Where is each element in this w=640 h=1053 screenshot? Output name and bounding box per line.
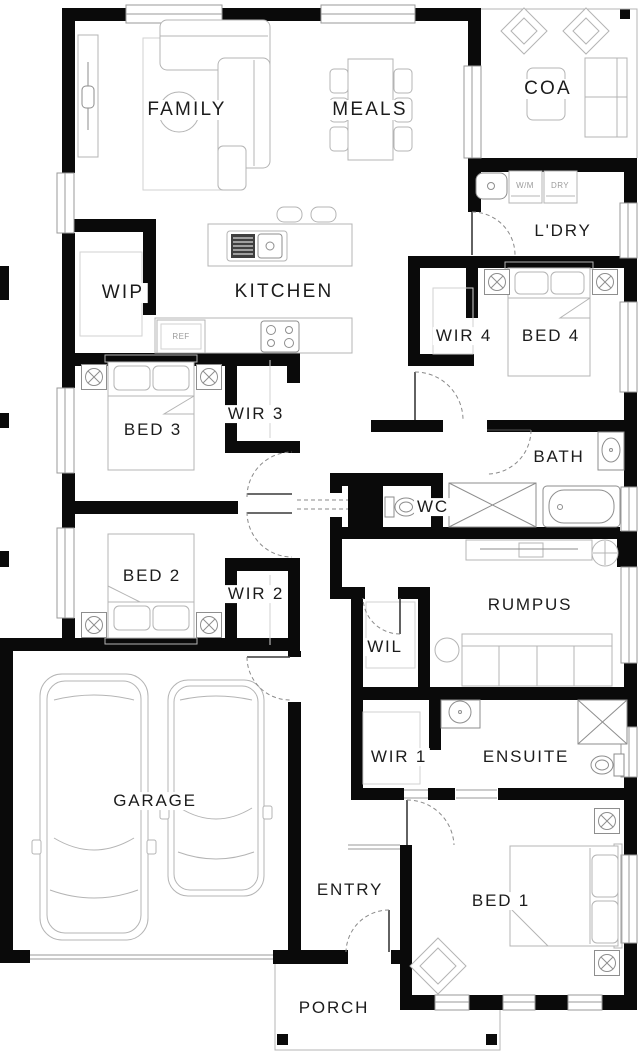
bed4-furniture-part [485, 270, 510, 295]
walls-part [287, 353, 300, 383]
doors-part [247, 512, 292, 557]
corner-chair [563, 8, 609, 54]
room-label-laundry: L'DRY [531, 222, 594, 240]
walls-part [0, 638, 62, 651]
walls-part [330, 473, 443, 486]
pillow [114, 606, 150, 630]
walls-part [330, 527, 620, 539]
room-label-garage: GARAGE [110, 792, 200, 810]
car-part [168, 680, 264, 896]
walls-part [469, 995, 503, 1010]
pillow [153, 606, 189, 630]
walls-part [351, 587, 363, 700]
walls-part [466, 256, 478, 318]
garage-door [30, 955, 273, 959]
laundry-sink-icon [476, 173, 507, 199]
walls-part [288, 651, 301, 657]
boundary-pier [0, 551, 9, 567]
walls-part [288, 702, 301, 950]
room-label-wil: WIL [364, 638, 406, 656]
walls-part [624, 158, 637, 203]
room-label-bath: BATH [530, 448, 587, 466]
doors-part [472, 212, 515, 255]
walls-part [412, 995, 435, 1010]
car-part [147, 840, 156, 854]
walls-part [351, 587, 365, 599]
walls-part [408, 354, 474, 366]
doors-part [415, 372, 463, 420]
walls-part [602, 995, 637, 1010]
room-label-porch: PORCH [296, 999, 372, 1017]
bed3-furniture-part [197, 365, 222, 390]
walls-part [400, 845, 412, 1010]
boundary-pier [0, 266, 9, 300]
walls-part [348, 480, 383, 533]
pillow [114, 366, 150, 390]
fridge-label: REF [171, 333, 190, 341]
family-furniture-part [82, 86, 94, 108]
walls-part [0, 651, 13, 950]
pillow [592, 901, 618, 943]
dryer-label: DRY [550, 182, 570, 190]
walls-part [468, 8, 481, 66]
walls-part [287, 441, 300, 453]
walls-part [225, 353, 237, 453]
walls-part [351, 788, 404, 800]
walls-part [408, 256, 420, 366]
porch-post [486, 1034, 497, 1045]
coa-post [620, 9, 630, 19]
bed1-furniture-part [595, 809, 620, 834]
walls-part [398, 587, 430, 599]
walls-part [62, 8, 75, 173]
chaise [218, 146, 246, 190]
walls-part [288, 558, 300, 651]
bed1-furniture-part [595, 951, 620, 976]
linen-shelf [366, 602, 415, 668]
dining-chair [394, 69, 412, 93]
room-label-wc: WC [414, 498, 452, 516]
room-label-bed4: BED 4 [519, 327, 583, 345]
bed2-furniture-part [197, 613, 222, 638]
bed4-furniture-part [593, 270, 618, 295]
walls-part [62, 473, 75, 528]
walls-part [273, 950, 348, 964]
bathtub-icon [543, 486, 620, 527]
doors-part [363, 598, 400, 634]
stool [277, 207, 302, 222]
cooktop-icon [261, 321, 299, 352]
room-label-family: FAMILY [144, 100, 229, 120]
pillow [515, 272, 548, 294]
room-label-bed1: BED 1 [469, 892, 533, 910]
walls-part [62, 219, 156, 232]
room-label-wir1: WIR 1 [368, 748, 430, 766]
walls-part [428, 788, 455, 800]
armchair [410, 938, 466, 994]
pillow [551, 272, 584, 294]
room-label-kitchen: KITCHEN [232, 282, 337, 302]
side-table [435, 638, 459, 662]
boundary-pier [0, 413, 9, 428]
walls-part [351, 700, 363, 788]
walls-part [498, 788, 637, 800]
walls-part [418, 599, 430, 687]
walls-part [624, 392, 637, 487]
bed2-furniture-part [82, 613, 107, 638]
doors-part [487, 430, 531, 474]
vanity [441, 700, 480, 728]
rumpus-furniture-part [519, 543, 543, 557]
room-label-rumpus: RUMPUS [485, 596, 575, 614]
room-label-bed3: BED 3 [121, 421, 185, 439]
dining-chair [394, 127, 412, 151]
room-label-wir4: WIR 4 [433, 327, 495, 345]
room-label-wir3: WIR 3 [225, 405, 287, 423]
washer-label: W/M [515, 182, 535, 190]
walls-part [371, 420, 443, 432]
walls-part [391, 950, 412, 964]
doors-part [407, 800, 454, 845]
room-label-coa: COA [521, 79, 575, 99]
walls-part [351, 687, 637, 700]
car-part [32, 840, 41, 854]
coa-furniture [501, 8, 627, 137]
toilet-icon [385, 497, 394, 517]
room-label-wir2: WIR 2 [225, 585, 287, 603]
dining-chair [330, 69, 348, 93]
kitchen-furniture-part [258, 234, 282, 258]
room-label-wip: WIP [99, 283, 148, 303]
ensuite-fixtures-part [591, 756, 613, 774]
porch-post [277, 1034, 288, 1045]
doors-part [247, 452, 292, 497]
stool [311, 207, 336, 222]
dining-chair [330, 127, 348, 151]
toilet-icon [614, 754, 624, 776]
walls-part [222, 8, 321, 21]
walls-part [429, 700, 441, 750]
floor-plan: FAMILY MEALS COA L'DRY WIP KITCHEN WIR 4… [0, 0, 640, 1053]
room-label-entry: ENTRY [314, 881, 386, 899]
room-label-meals: MEALS [329, 100, 410, 120]
ensuite-fixtures [363, 700, 627, 784]
corner-chair [501, 8, 547, 54]
bed3-furniture-part [82, 365, 107, 390]
doors-part [346, 910, 389, 952]
room-label-ensuite: ENSUITE [480, 748, 572, 766]
pillow [592, 855, 618, 897]
car-part [263, 806, 272, 819]
walls-part [62, 501, 238, 514]
car [160, 680, 272, 896]
room-label-bed2: BED 2 [120, 567, 184, 585]
walls-part [225, 558, 237, 650]
pillow [153, 366, 189, 390]
walls-part [0, 950, 30, 963]
walls-part [535, 995, 568, 1010]
walls-part [468, 158, 637, 172]
